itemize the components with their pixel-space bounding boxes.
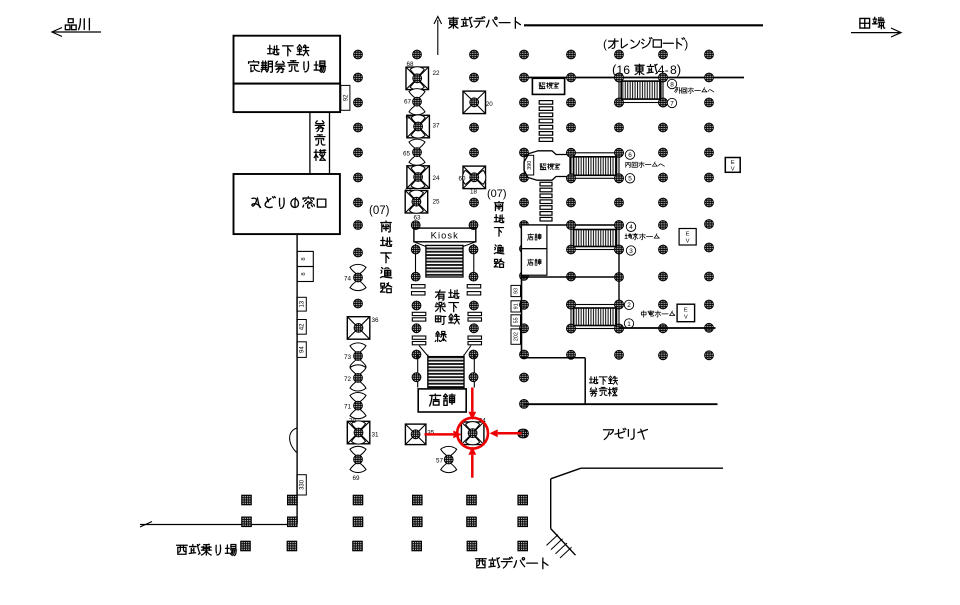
svg-text:8: 8 [301, 257, 307, 260]
svg-text:57: 57 [436, 458, 444, 465]
svg-text:70: 70 [349, 418, 357, 425]
svg-text:65: 65 [403, 151, 411, 158]
svg-text:92: 92 [344, 94, 350, 101]
svg-text:67: 67 [404, 99, 412, 106]
svg-text:73: 73 [344, 354, 352, 361]
svg-text:E: E [684, 308, 688, 314]
svg-text:E: E [686, 232, 690, 238]
svg-text:68: 68 [407, 61, 415, 68]
svg-text:91: 91 [514, 303, 520, 309]
svg-text:22: 22 [433, 70, 441, 77]
svg-text:94: 94 [300, 346, 306, 353]
svg-text:71: 71 [344, 404, 352, 411]
svg-text:6: 6 [623, 63, 630, 77]
svg-text:8: 8 [301, 272, 307, 275]
svg-text:7: 7 [670, 100, 674, 107]
svg-text:5: 5 [628, 176, 632, 183]
svg-text:55: 55 [514, 317, 520, 323]
svg-text:42: 42 [300, 323, 306, 330]
svg-text:): ) [684, 37, 688, 51]
svg-text:330: 330 [300, 479, 306, 490]
svg-text:3: 3 [629, 248, 633, 255]
svg-text:13: 13 [300, 300, 306, 307]
svg-text:8: 8 [670, 81, 674, 88]
svg-text:69: 69 [353, 475, 361, 482]
svg-text:Kiosk: Kiosk [431, 231, 459, 241]
svg-text:): ) [677, 62, 681, 77]
svg-text:4: 4 [629, 224, 633, 231]
svg-text:1: 1 [627, 321, 631, 328]
svg-text:390: 390 [527, 161, 533, 170]
svg-text:66: 66 [406, 114, 414, 121]
svg-text:E: E [731, 160, 735, 166]
svg-text:60: 60 [459, 176, 467, 183]
svg-text:31: 31 [372, 432, 380, 439]
svg-text:V: V [684, 315, 688, 321]
svg-text:2: 2 [627, 302, 631, 309]
svg-text:202: 202 [514, 332, 520, 341]
svg-text:24: 24 [433, 175, 441, 182]
svg-text:72: 72 [344, 376, 352, 383]
svg-text:74: 74 [344, 276, 352, 283]
svg-text:(07): (07) [487, 188, 507, 200]
svg-text:6: 6 [628, 152, 632, 159]
svg-text:V: V [686, 239, 690, 245]
svg-text:93: 93 [514, 288, 520, 294]
svg-text:(: ( [603, 37, 607, 51]
svg-text:18: 18 [470, 189, 478, 196]
svg-text:V: V [731, 167, 735, 173]
svg-text:25: 25 [433, 199, 441, 206]
svg-text:(07): (07) [369, 205, 390, 217]
svg-text:20: 20 [486, 101, 494, 108]
svg-text:36: 36 [372, 317, 380, 324]
svg-text:37: 37 [433, 123, 441, 130]
